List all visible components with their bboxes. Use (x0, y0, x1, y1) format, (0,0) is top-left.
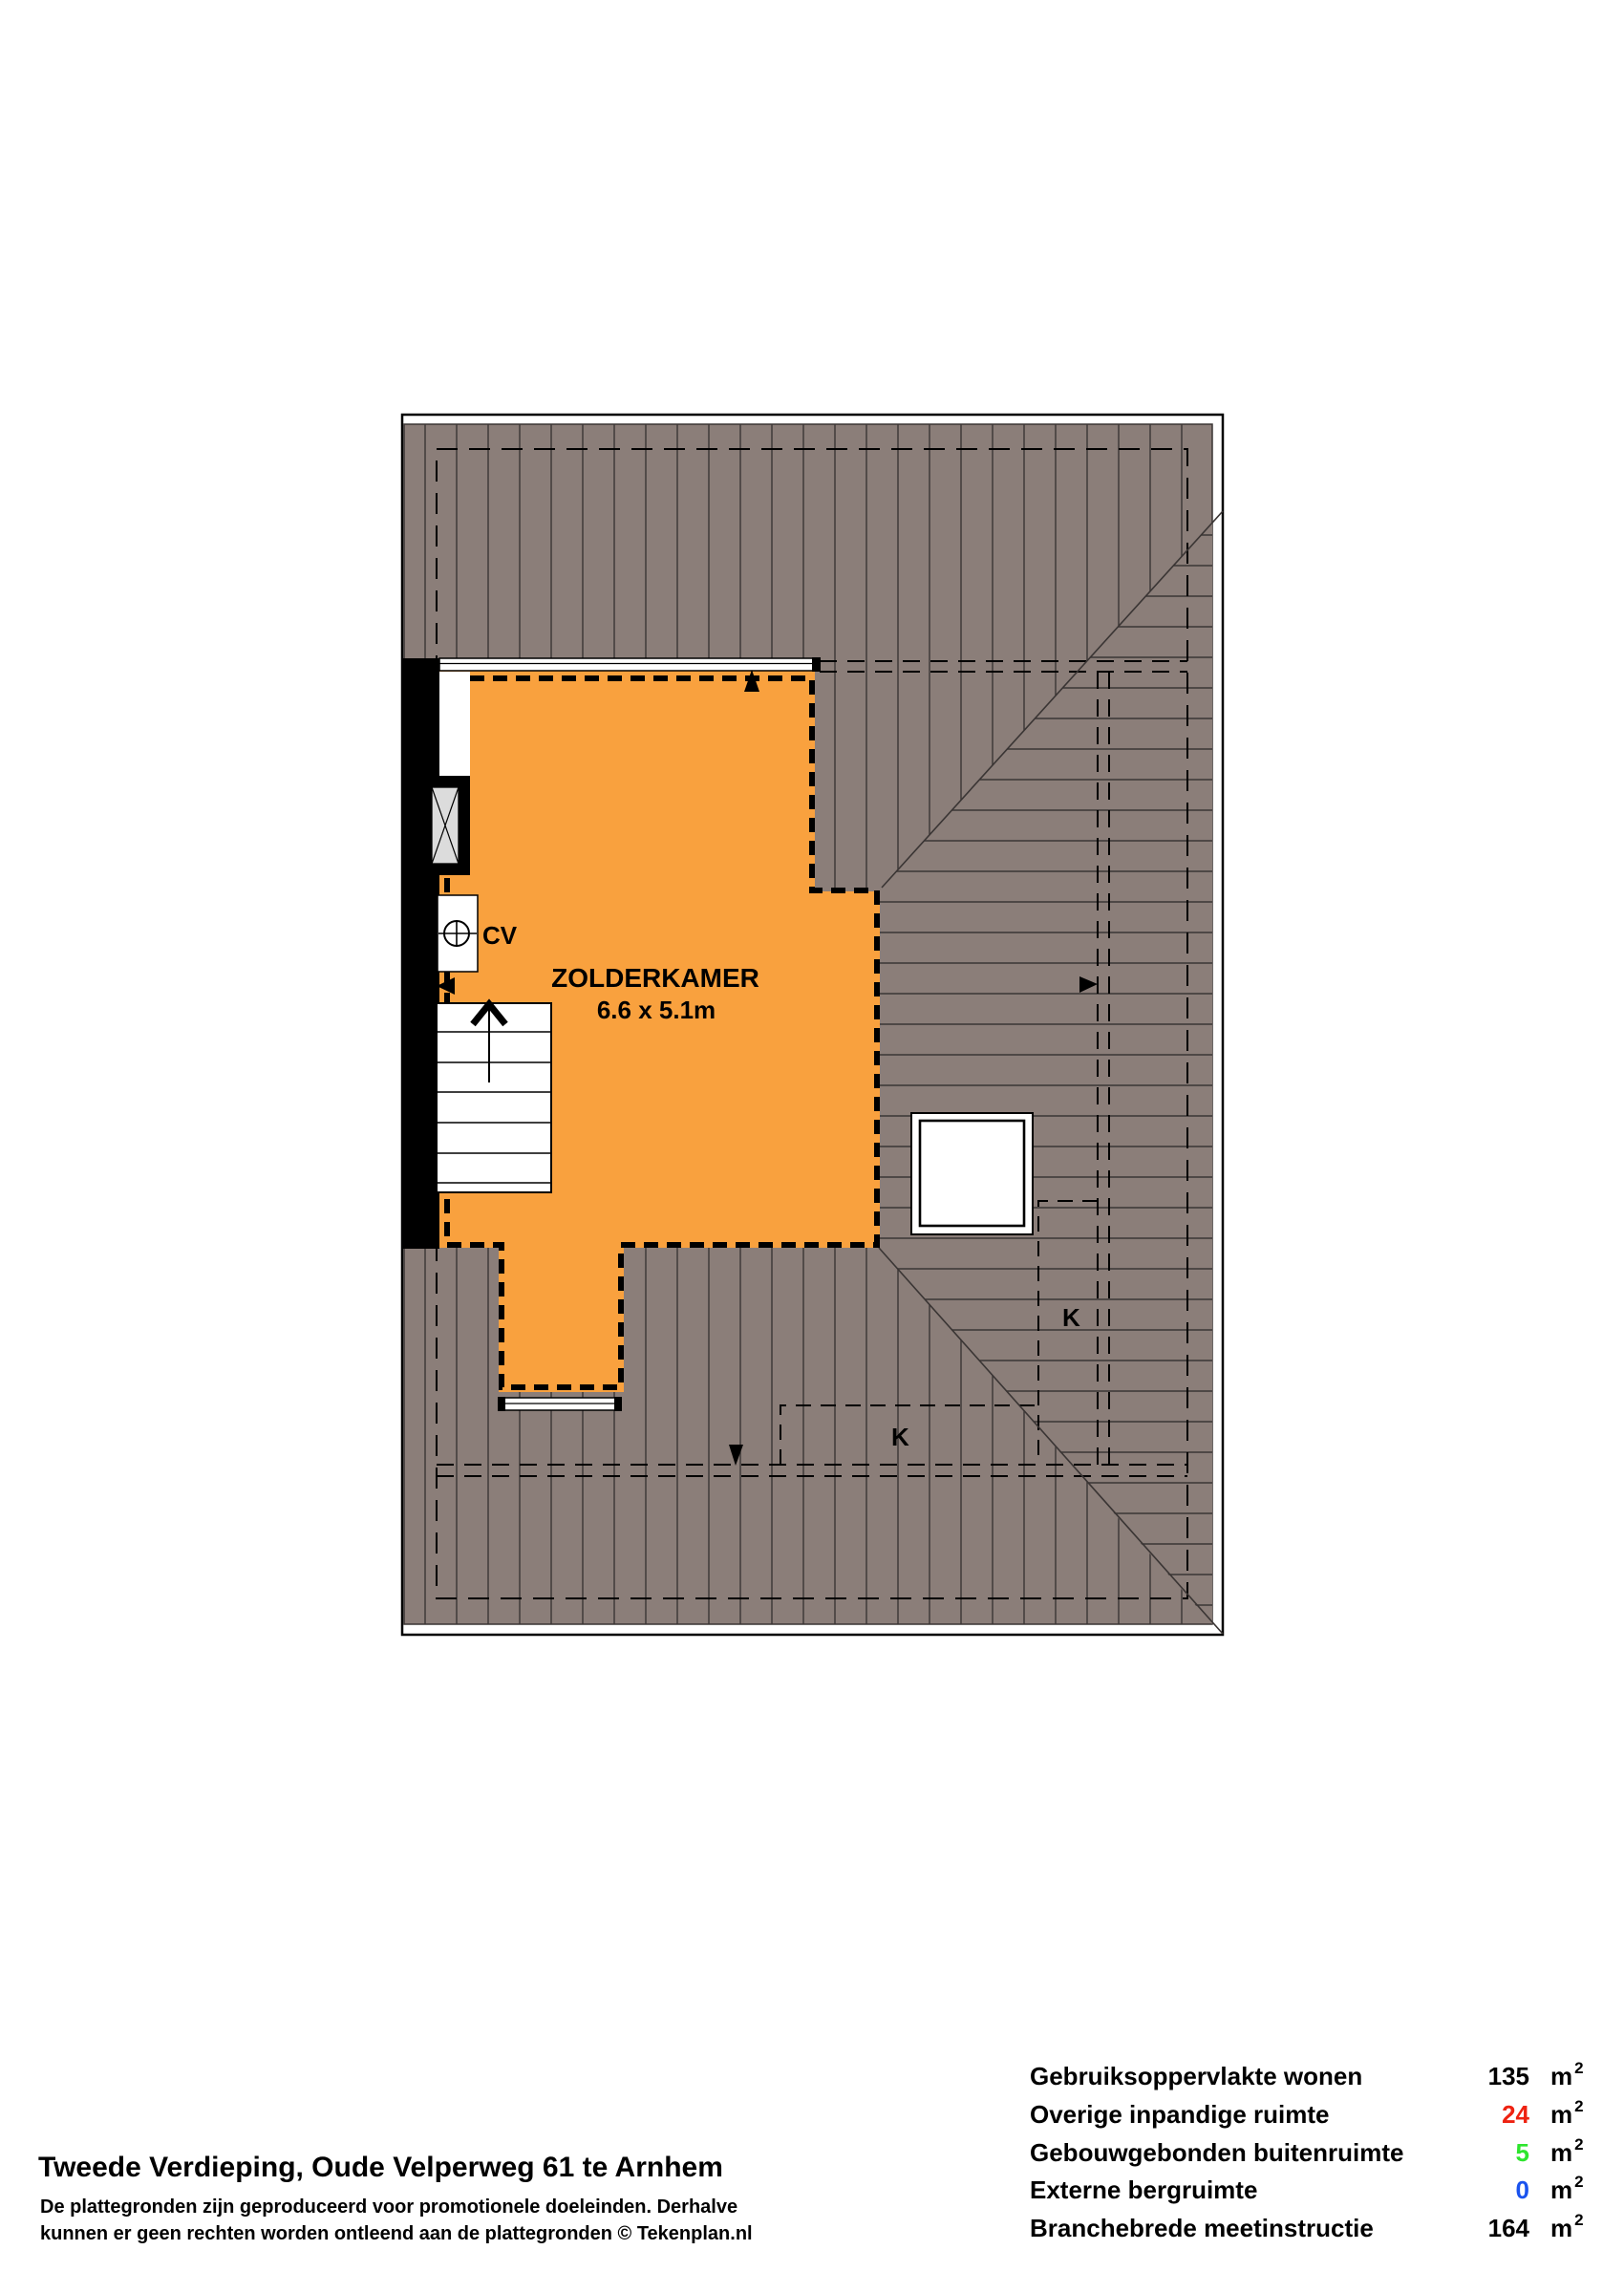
row-label: Gebruiksoppervlakte wonen (1030, 2062, 1431, 2091)
floorplan-page: ZOLDERKAMER 6.6 x 5.1m CV K K Tweede Ver… (0, 0, 1624, 2293)
row-unit: m2 (1550, 2062, 1584, 2091)
row-label: Externe bergruimte (1030, 2175, 1431, 2205)
skylight-k-label-bottom: K (891, 1423, 909, 1451)
surface-summary-table: Gebruiksoppervlakte wonen 135 m2 Overige… (1030, 2062, 1603, 2252)
skylight-k-label-right: K (1062, 1303, 1080, 1332)
floorplan-drawing: ZOLDERKAMER 6.6 x 5.1m CV K K (0, 0, 1624, 2293)
row-label: Branchebrede meetinstructie (1030, 2214, 1431, 2243)
wall-window (432, 787, 459, 864)
room-name-label: ZOLDERKAMER (551, 963, 759, 993)
row-unit: m2 (1550, 2214, 1584, 2243)
unit-superscript: 2 (1574, 2173, 1583, 2191)
row-value: 164 (1431, 2214, 1529, 2243)
unit-superscript: 2 (1574, 2211, 1583, 2229)
row-label: Gebouwgebonden buitenruimte (1030, 2138, 1431, 2168)
row-value: 135 (1431, 2062, 1529, 2091)
disclaimer-line-2: kunnen er geen rechten worden ontleend a… (40, 2223, 753, 2245)
staircase (437, 1003, 551, 1192)
row-unit: m2 (1550, 2175, 1584, 2205)
cv-unit (438, 895, 478, 972)
dormer-window-top (439, 657, 821, 672)
table-row: Branchebrede meetinstructie 164 m2 (1030, 2214, 1603, 2252)
row-value: 0 (1431, 2175, 1529, 2205)
dormer-window-bottom (498, 1397, 622, 1411)
skylight-window (911, 1113, 1033, 1234)
disclaimer-line-1: De plattegronden zijn geproduceerd voor … (40, 2197, 737, 2218)
row-unit: m2 (1550, 2100, 1584, 2130)
unit-superscript: 2 (1574, 2059, 1583, 2077)
left-wall (402, 658, 439, 1249)
table-row: Externe bergruimte 0 m2 (1030, 2175, 1603, 2214)
row-value: 24 (1431, 2100, 1529, 2130)
row-value: 5 (1431, 2138, 1529, 2168)
page-title: Tweede Verdieping, Oude Velperweg 61 te … (38, 2152, 723, 2184)
table-row: Overige inpandige ruimte 24 m2 (1030, 2100, 1603, 2138)
unit-superscript: 2 (1574, 2097, 1583, 2115)
row-unit: m2 (1550, 2138, 1584, 2168)
wall-recess (439, 672, 470, 776)
table-row: Gebouwgebonden buitenruimte 5 m2 (1030, 2138, 1603, 2176)
cv-label: CV (482, 921, 518, 950)
room-dimensions-label: 6.6 x 5.1m (597, 996, 716, 1024)
row-label: Overige inpandige ruimte (1030, 2100, 1431, 2130)
unit-superscript: 2 (1574, 2135, 1583, 2154)
table-row: Gebruiksoppervlakte wonen 135 m2 (1030, 2062, 1603, 2100)
